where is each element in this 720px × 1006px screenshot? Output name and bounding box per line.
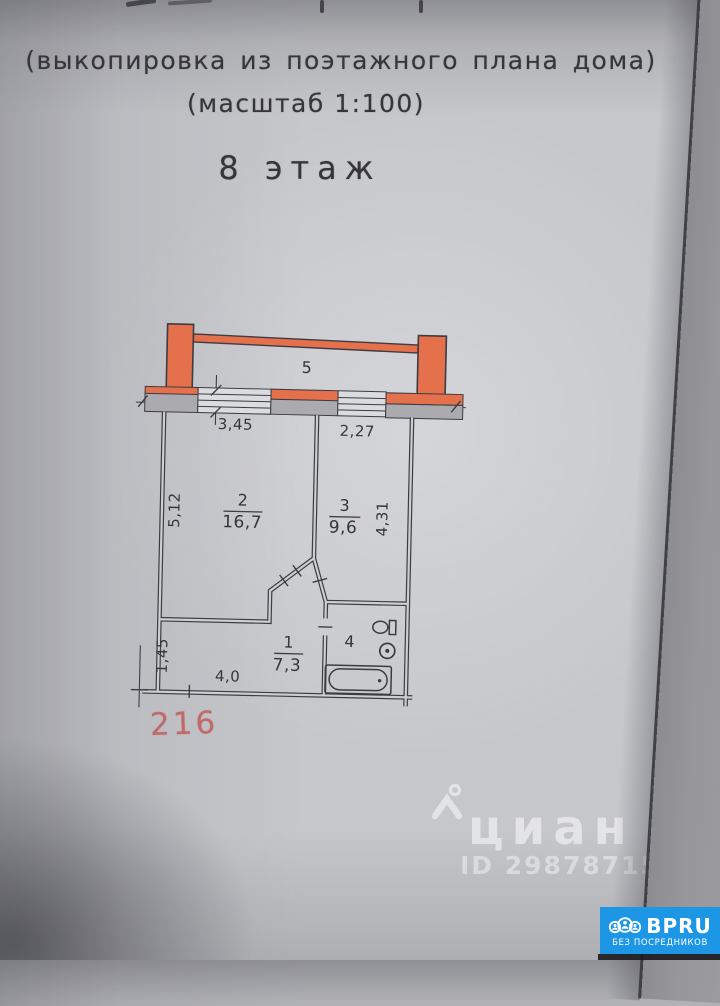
- photographed-floorplan-document: { "document": { "header_line1": "(выкопи…: [0, 0, 720, 960]
- apartment-number: 216: [149, 705, 218, 743]
- room3-number: 3: [339, 496, 350, 515]
- bpru-badge: BPRU БЕЗ ПОСРЕДНИКОВ: [600, 907, 720, 954]
- toilet-tank-icon: [389, 620, 396, 634]
- cian-watermark-brand: циан: [468, 800, 635, 856]
- dim-right: 4,31: [373, 501, 392, 537]
- torn-text-mark: [168, 0, 212, 6]
- dim-left: 5,12: [165, 492, 184, 528]
- bpru-badge-row: BPRU: [608, 914, 712, 938]
- toilet-icon: [373, 621, 388, 633]
- torn-text-mark: [419, 0, 423, 13]
- dim-top-right: 2,27: [339, 422, 375, 441]
- bpru-people-icon: [608, 914, 642, 938]
- bpru-tagline: БЕЗ ПОСРЕДНИКОВ: [612, 939, 708, 948]
- photo-bottom-edge: [598, 954, 720, 960]
- document-title: (выкопировка из поэтажного плана дома): [4, 46, 678, 75]
- dim-hall-left: 1,45: [153, 638, 172, 674]
- room4-number: 4: [344, 632, 355, 651]
- dim-top-left: 3,45: [217, 415, 253, 434]
- bathroom-fixtures: [325, 619, 396, 695]
- balcony-rail: [193, 334, 418, 353]
- cian-pin-icon: [428, 782, 472, 820]
- bpru-brand: BPRU: [646, 916, 712, 936]
- floor-label: 8 этаж: [0, 149, 600, 187]
- dim-hall-bottom: 4,0: [215, 667, 241, 686]
- floor-plan: 5 2 16,7 3 9,6 1 7,3 4 3,45 2,27 5,12 4,…: [130, 315, 480, 745]
- room1-area: 7,3: [272, 655, 301, 676]
- exterior-wall: [145, 386, 464, 419]
- room5-number: 5: [301, 358, 312, 377]
- torn-text-mark: [126, 0, 156, 7]
- room2-number: 2: [237, 490, 248, 509]
- torn-text-mark: [320, 0, 324, 13]
- room3-area: 9,6: [329, 518, 358, 539]
- room1-number: 1: [283, 633, 294, 652]
- document-scale: (масштаб 1:100): [0, 89, 612, 118]
- balcony-pillar-left: [166, 324, 194, 396]
- room2-area: 16,7: [222, 512, 262, 533]
